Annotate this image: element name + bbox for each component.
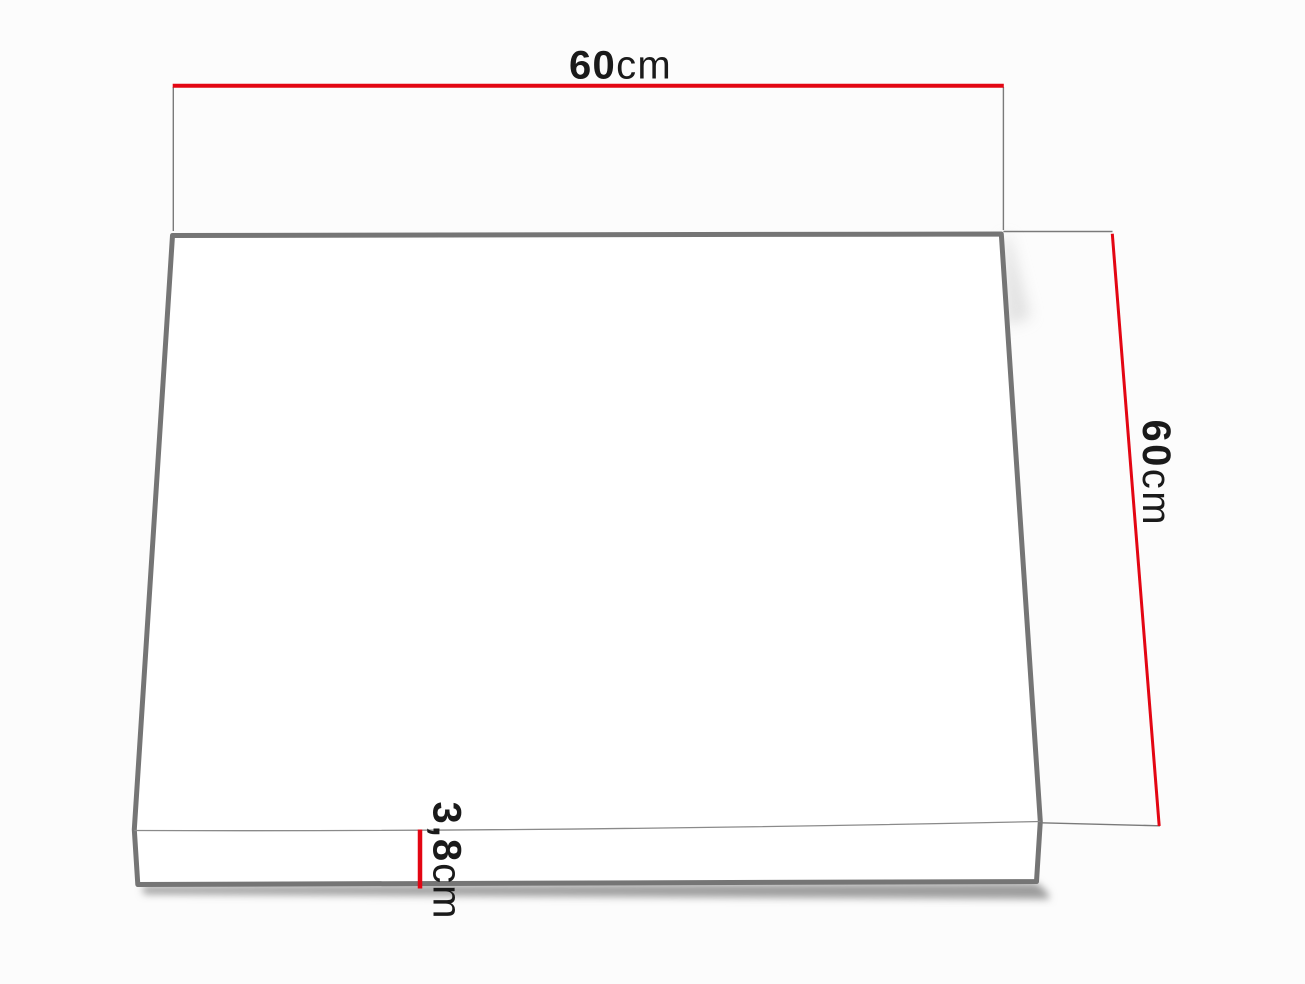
svg-text:3,8cm: 3,8cm xyxy=(425,802,469,921)
svg-text:60cm: 60cm xyxy=(1134,420,1178,527)
svg-text:60cm: 60cm xyxy=(569,43,672,87)
